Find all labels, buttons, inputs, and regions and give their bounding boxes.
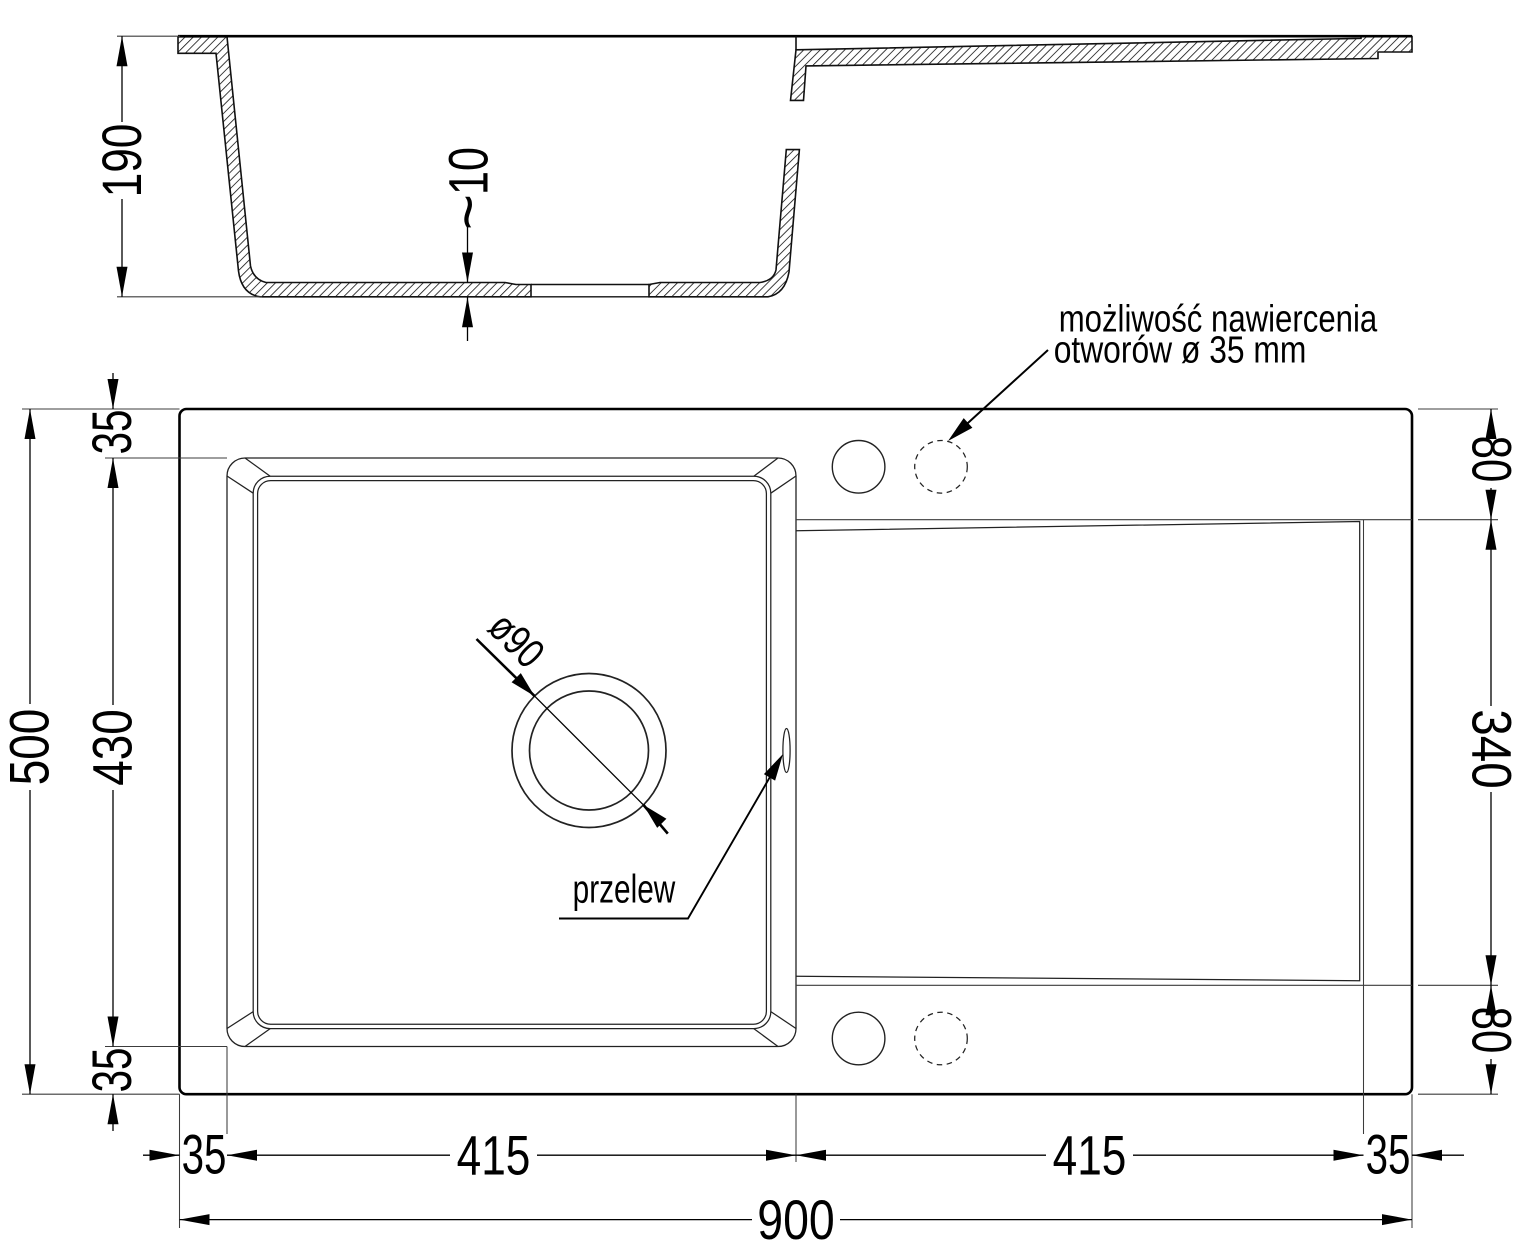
svg-text:~: ~	[434, 194, 503, 230]
svg-text:340: 340	[1460, 709, 1522, 788]
svg-text:80: 80	[1460, 436, 1522, 483]
svg-text:430: 430	[81, 709, 143, 786]
svg-text:przelew: przelew	[573, 867, 676, 911]
svg-text:415: 415	[457, 1124, 531, 1187]
svg-text:415: 415	[1053, 1124, 1127, 1187]
svg-text:35: 35	[82, 1048, 144, 1093]
svg-text:otworów ø 35 mm: otworów ø 35 mm	[1054, 329, 1307, 371]
svg-text:900: 900	[757, 1188, 835, 1248]
svg-text:35: 35	[182, 1124, 227, 1186]
svg-text:190: 190	[90, 124, 153, 198]
svg-text:500: 500	[0, 709, 61, 786]
svg-text:80: 80	[1460, 1007, 1522, 1054]
svg-text:10: 10	[437, 147, 500, 195]
svg-text:35: 35	[82, 410, 144, 455]
svg-text:35: 35	[1366, 1124, 1411, 1186]
